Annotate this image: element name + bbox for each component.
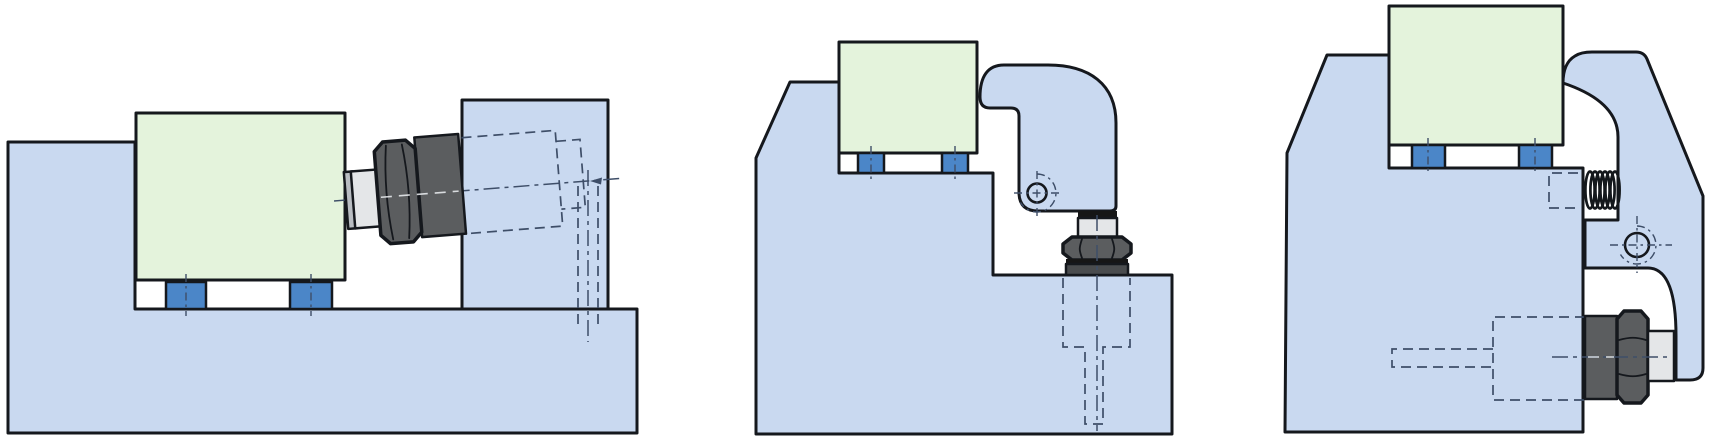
sensor-block <box>1389 6 1563 145</box>
connector-hex-nut <box>374 139 423 244</box>
preload-spring <box>1585 172 1619 209</box>
sensor-block <box>839 42 977 153</box>
figure-2-hook-clamp-mount <box>756 42 1172 434</box>
mounting-diagrams-canvas <box>0 0 1719 445</box>
sensor-block <box>136 113 345 280</box>
diagram-stage <box>0 0 1719 445</box>
hook-clamp-arm <box>980 65 1116 211</box>
connector-tip <box>1648 331 1674 381</box>
figure-1-horizontal-wall-mount <box>8 100 637 433</box>
figure-3-c-clamp-spring-mount <box>1285 6 1703 432</box>
